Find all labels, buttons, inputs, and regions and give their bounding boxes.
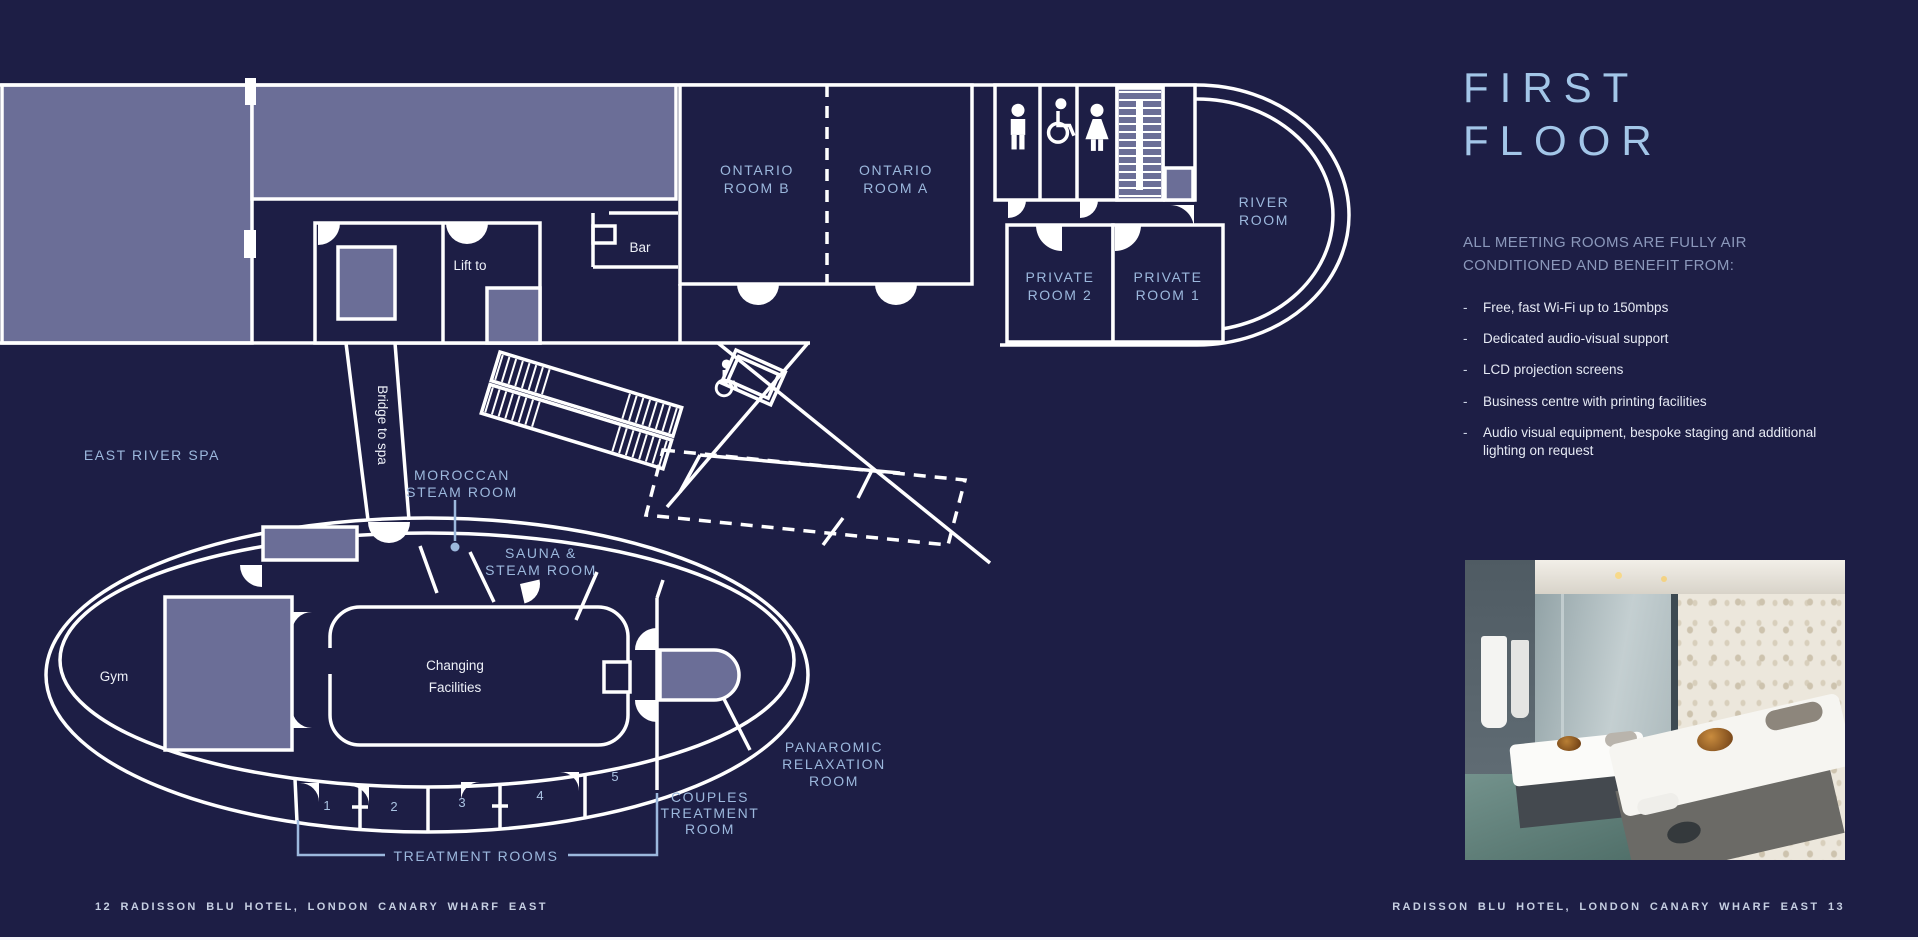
moroccan-label: MOROCCAN xyxy=(414,467,510,483)
wall-nub xyxy=(244,230,256,258)
svg-text:ROOM A: ROOM A xyxy=(863,180,929,196)
restrooms-block xyxy=(995,85,1195,229)
spa-service-block xyxy=(263,527,357,560)
page-title-line2: FLOOR xyxy=(1463,115,1663,168)
door-arc xyxy=(1080,200,1098,218)
private-room-2-label: PRIVATE xyxy=(1025,269,1094,285)
svg-text:ROOM: ROOM xyxy=(809,773,859,789)
terrace-outline xyxy=(646,450,965,545)
bridge-to-spa: Bridge to spa xyxy=(346,343,410,543)
escalators xyxy=(481,343,990,563)
ontario-rooms: ONTARIO ROOM B ONTARIO ROOM A xyxy=(680,85,972,343)
treatment-room-5: 5 xyxy=(611,769,618,784)
list-item-text: LCD projection screens xyxy=(1483,361,1623,379)
svg-text:STEAM ROOM: STEAM ROOM xyxy=(406,484,518,500)
door-arc xyxy=(737,284,758,305)
door-gap xyxy=(327,648,335,674)
brochure-page: Bar Lift to ONTARIO ROOM B ONTARIO ROOM xyxy=(0,0,1918,940)
door-arc xyxy=(560,772,579,791)
list-item-text: Business centre with printing facilities xyxy=(1483,393,1707,411)
bar-area: Bar xyxy=(593,213,678,267)
door-arc xyxy=(292,612,312,632)
atrium-lift xyxy=(721,350,785,405)
door-arc xyxy=(300,783,319,802)
adjacent-building-block-2 xyxy=(252,85,676,199)
footer-left: 12 RADISSON BLU HOTEL, LONDON CANARY WHA… xyxy=(95,901,548,913)
first-floor-plan: Bar Lift to ONTARIO ROOM B ONTARIO ROOM xyxy=(0,0,1430,940)
svg-text:ROOM B: ROOM B xyxy=(724,180,790,196)
list-item-text: Audio visual equipment, bespoke staging … xyxy=(1483,424,1825,460)
stair-rail xyxy=(1136,100,1143,190)
spa-pool xyxy=(660,650,739,700)
list-item: - Business centre with printing faciliti… xyxy=(1463,393,1825,411)
gym-label: Gym xyxy=(100,669,129,684)
door-arc xyxy=(292,708,312,728)
bullet-dash: - xyxy=(1463,299,1483,317)
moroccan-leader-dot xyxy=(451,543,460,552)
list-item-text: Free, fast Wi-Fi up to 150mbps xyxy=(1483,299,1668,317)
couples-label: COUPLES xyxy=(671,789,749,805)
treatment-room-3: 3 xyxy=(458,795,465,810)
door-arc xyxy=(896,284,917,305)
service-room xyxy=(1165,168,1193,200)
photo-towel xyxy=(1481,636,1507,728)
page-title: FIRST FLOOR xyxy=(1463,62,1663,168)
photo-ceiling xyxy=(1535,560,1845,594)
svg-text:ROOM 1: ROOM 1 xyxy=(1136,287,1201,303)
door-arc xyxy=(520,580,544,604)
door-arc xyxy=(635,628,657,650)
amenities-list: - Free, fast Wi-Fi up to 150mbps - Dedic… xyxy=(1463,299,1833,460)
door-arc xyxy=(1008,200,1026,218)
photo-towel xyxy=(1511,640,1529,718)
bullet-dash: - xyxy=(1463,361,1483,379)
adjacent-building-block xyxy=(2,85,252,343)
private-rooms: PRIVATE ROOM 2 PRIVATE ROOM 1 xyxy=(1007,225,1223,342)
door-arc xyxy=(240,565,262,587)
door-arc xyxy=(635,700,657,722)
svg-text:Facilities: Facilities xyxy=(429,680,482,695)
east-river-spa-label: EAST RIVER SPA xyxy=(84,447,220,463)
gym-equipment-block xyxy=(165,597,292,750)
svg-text:STEAM ROOM: STEAM ROOM xyxy=(485,562,597,578)
treatment-room-4: 4 xyxy=(536,788,543,803)
door-arc xyxy=(758,284,779,305)
info-heading: ALL MEETING ROOMS ARE FULLY AIR CONDITIO… xyxy=(1463,232,1815,277)
wall-nub xyxy=(245,78,256,105)
door-arc xyxy=(389,522,410,543)
lift-lobby: Lift to xyxy=(315,223,540,343)
photo-ceiling-light xyxy=(1615,572,1622,579)
lift-shaft xyxy=(487,288,540,343)
footer-right: RADISSON BLU HOTEL, LONDON CANARY WHARF … xyxy=(1392,901,1845,913)
spa-photo xyxy=(1465,560,1845,860)
river-room-label: RIVER xyxy=(1239,194,1290,210)
bullet-dash: - xyxy=(1463,330,1483,348)
ontario-b-label: ONTARIO xyxy=(720,162,794,178)
svg-text:ROOM: ROOM xyxy=(1239,212,1289,228)
treatment-rooms-label: TREATMENT ROOMS xyxy=(393,848,558,864)
treatment-room-1: 1 xyxy=(323,798,330,813)
svg-text:ROOM: ROOM xyxy=(685,821,735,837)
svg-text:RELAXATION: RELAXATION xyxy=(782,756,886,772)
door-arc xyxy=(875,284,896,305)
list-item: - Free, fast Wi-Fi up to 150mbps xyxy=(1463,299,1825,317)
bridge-label: Bridge to spa xyxy=(375,385,390,465)
door-arc xyxy=(368,522,389,543)
bullet-dash: - xyxy=(1463,424,1483,460)
ontario-a-label: ONTARIO xyxy=(859,162,933,178)
lift-label: Lift to xyxy=(453,258,486,273)
bar-label: Bar xyxy=(629,240,651,255)
photo-bowl xyxy=(1557,736,1581,751)
treatment-room-2: 2 xyxy=(390,799,397,814)
panaromic-label: PANAROMIC xyxy=(785,739,883,755)
bullet-dash: - xyxy=(1463,393,1483,411)
wall-notch xyxy=(604,662,630,692)
changing-label: Changing xyxy=(426,658,484,673)
spa-interior: Gym Changing Facilities MOROCCAN STEAM R… xyxy=(100,467,750,832)
meeting-rooms-info: ALL MEETING ROOMS ARE FULLY AIR CONDITIO… xyxy=(1463,232,1833,473)
sauna-label: SAUNA & xyxy=(505,545,577,561)
list-item-text: Dedicated audio-visual support xyxy=(1483,330,1668,348)
atrium-walls xyxy=(667,343,990,563)
svg-text:TREATMENT: TREATMENT xyxy=(661,805,760,821)
changing-facilities-room xyxy=(330,607,628,745)
photo-ceiling-light xyxy=(1661,576,1667,582)
list-item: - Audio visual equipment, bespoke stagin… xyxy=(1463,424,1825,460)
list-item: - LCD projection screens xyxy=(1463,361,1825,379)
lift-shaft xyxy=(338,247,395,319)
list-item: - Dedicated audio-visual support xyxy=(1463,330,1825,348)
private-room-1-label: PRIVATE xyxy=(1133,269,1202,285)
page-title-line1: FIRST xyxy=(1463,62,1663,115)
svg-text:ROOM 2: ROOM 2 xyxy=(1028,287,1093,303)
